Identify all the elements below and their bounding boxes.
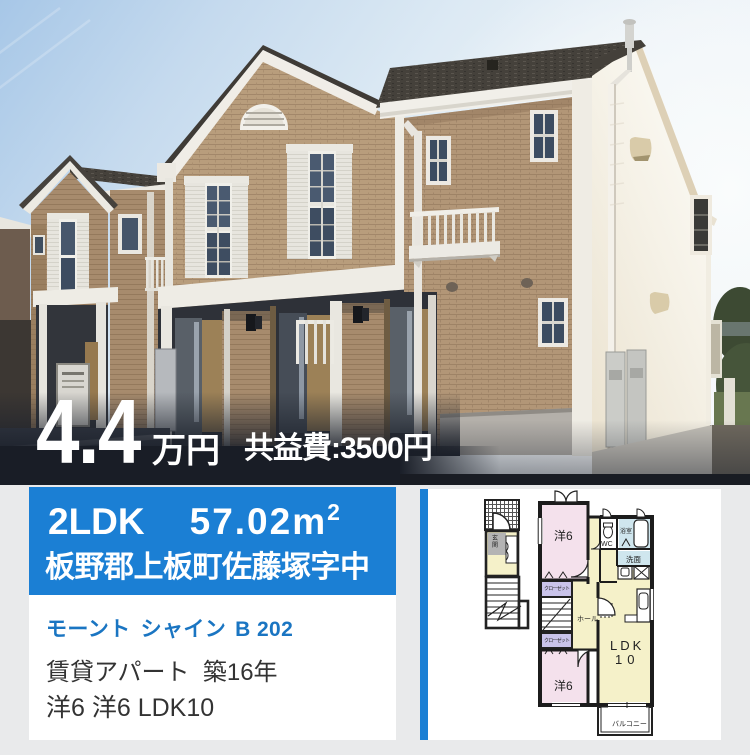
svg-text:洋6: 洋6 [554, 528, 573, 543]
svg-text:浴室: 浴室 [620, 527, 632, 535]
svg-text:洋6: 洋6 [554, 678, 573, 693]
svg-text:ホール: ホール [577, 615, 598, 623]
svg-text:WC: WC [601, 541, 613, 548]
svg-text:10: 10 [615, 652, 639, 667]
svg-text:クローゼット: クローゼット [544, 585, 570, 592]
svg-text:クローゼット: クローゼット [544, 637, 570, 644]
svg-text:関: 関 [492, 542, 498, 549]
svg-text:LDK: LDK [610, 638, 644, 653]
svg-text:洗面: 洗面 [626, 554, 641, 564]
svg-text:玄: 玄 [492, 534, 498, 542]
svg-text:バルコニー: バルコニー [612, 720, 647, 728]
